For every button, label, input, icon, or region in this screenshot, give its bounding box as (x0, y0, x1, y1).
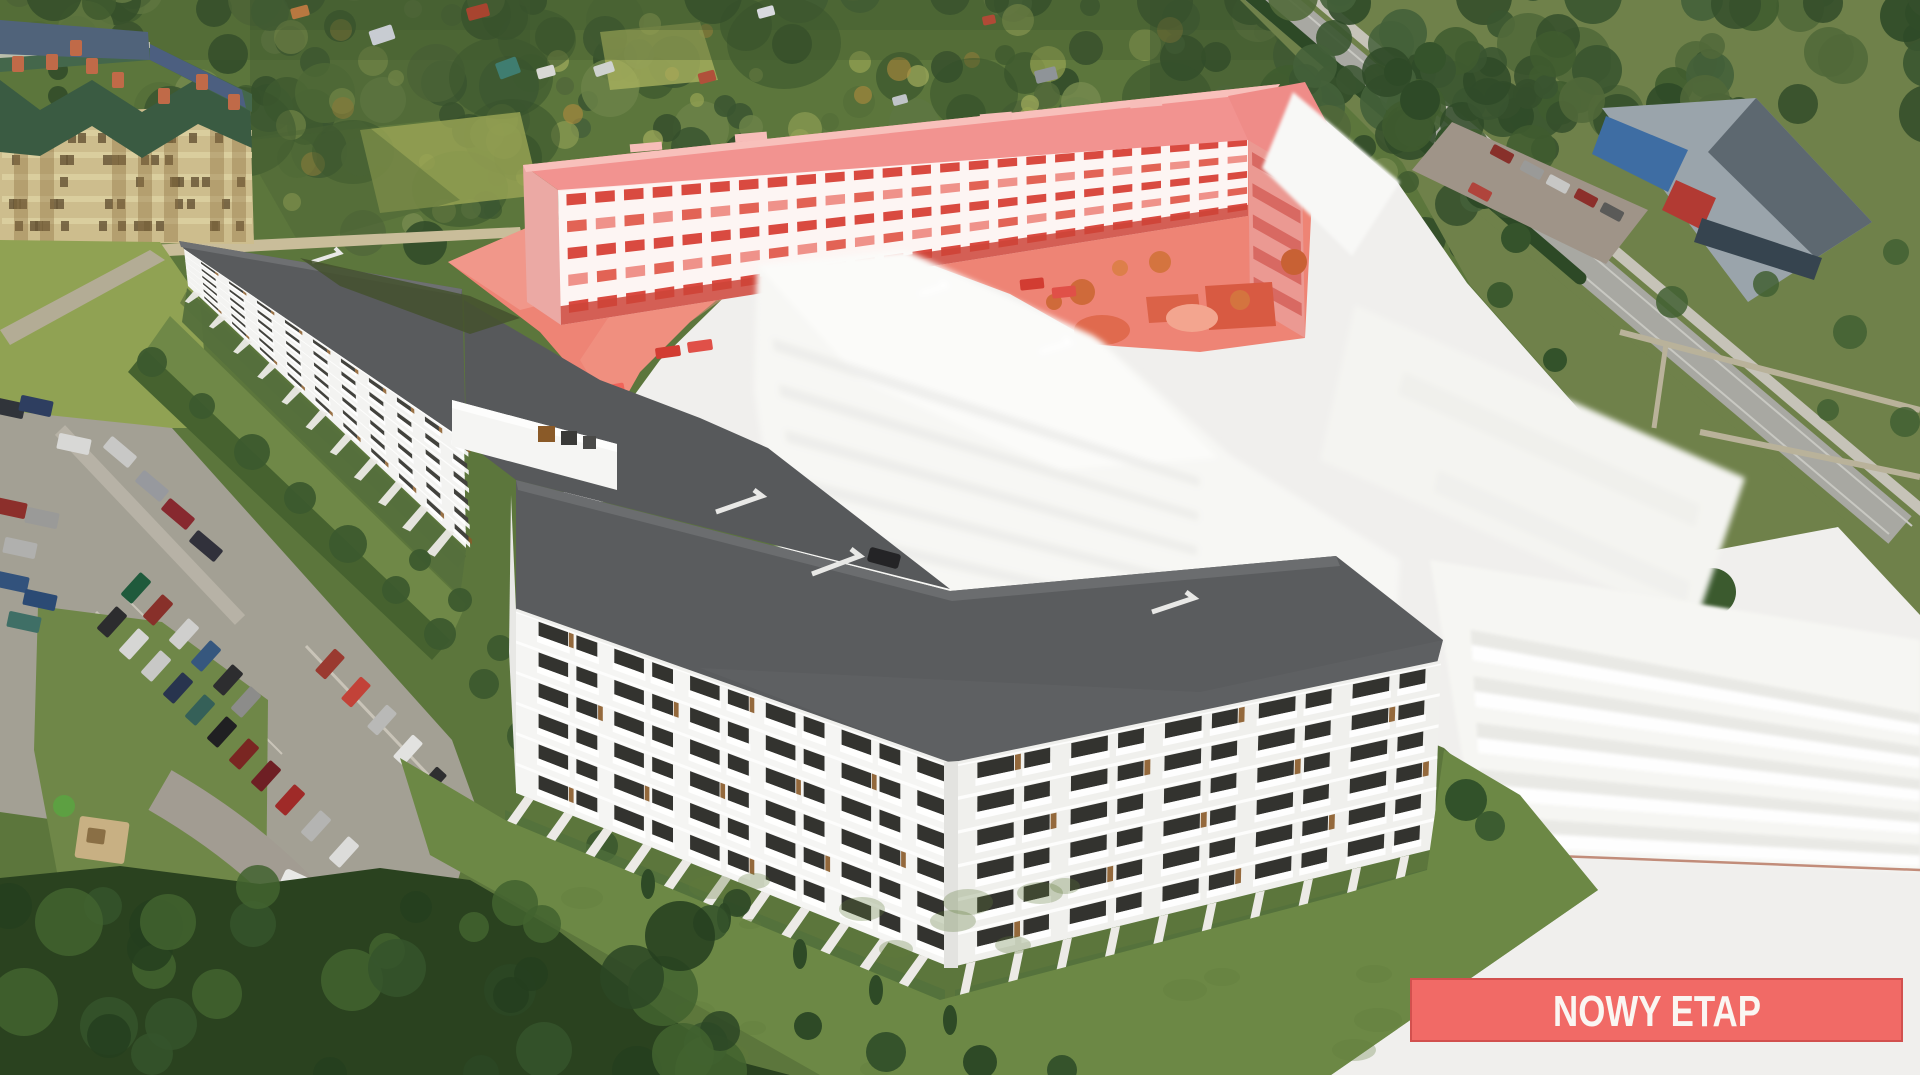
svg-text:NOWY ETAP: NOWY ETAP (1553, 987, 1761, 1036)
